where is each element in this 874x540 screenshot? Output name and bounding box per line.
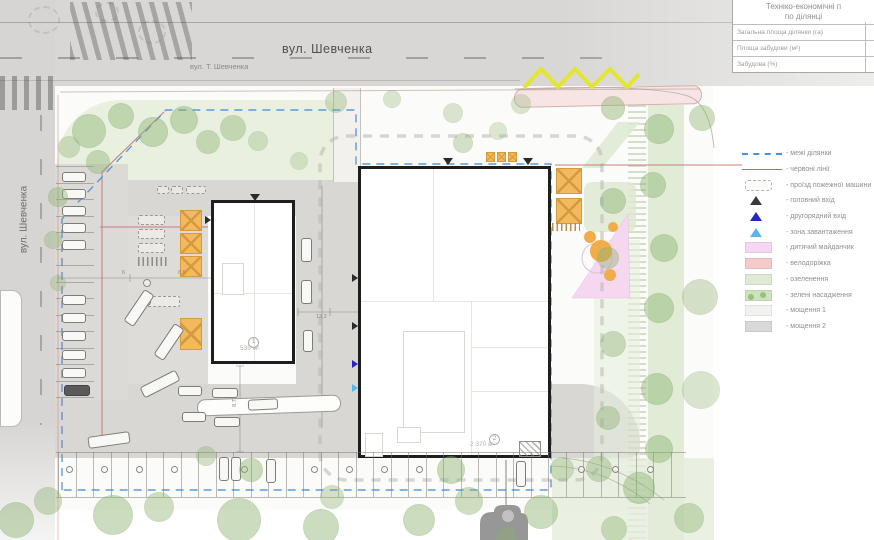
yellow-zigzag-marking: [524, 69, 639, 88]
tree: [623, 472, 655, 504]
secondary-entrance-marker: [352, 360, 358, 368]
tree: [217, 498, 261, 540]
stall-line: [56, 348, 94, 349]
vehicle: [62, 240, 86, 250]
vehicle: [219, 457, 229, 481]
stall-line: [146, 452, 147, 497]
vehicle: [62, 295, 86, 305]
stall-line: [426, 452, 427, 497]
vehicle: [248, 398, 279, 411]
tree: [597, 247, 619, 269]
marked-stall: [138, 229, 165, 239]
legend-item: - головний вхід: [742, 193, 874, 209]
tree: [689, 105, 715, 131]
tree: [383, 90, 401, 108]
vehicle: [62, 223, 86, 233]
dimension-label: 13.2: [316, 314, 327, 320]
vehicle: [62, 206, 86, 216]
loading-zone-marker: [352, 384, 358, 392]
bike-rack: [486, 152, 495, 162]
stall-line: [56, 381, 94, 382]
tree: [34, 487, 62, 515]
tree: [650, 234, 678, 262]
tree: [44, 231, 62, 249]
tree: [443, 103, 463, 123]
stall-line: [93, 452, 94, 497]
stall-symbol: [101, 466, 108, 473]
legend-label: - дитячий майданчик: [786, 244, 854, 251]
vehicle: [266, 459, 276, 483]
building-2: [358, 166, 551, 458]
tree: [248, 131, 268, 151]
stall-line: [583, 452, 584, 497]
vehicle: [62, 368, 86, 378]
legend-label: - мощення 1: [786, 307, 826, 314]
tree: [524, 495, 558, 529]
tree: [682, 371, 720, 409]
building-2-area: 2 370 м²: [470, 441, 495, 448]
tree: [511, 94, 531, 114]
legend-label: - другорядний вхід: [786, 213, 846, 220]
main-entrance-marker: [523, 158, 533, 165]
stall-line: [111, 452, 112, 497]
tree: [644, 293, 674, 323]
legend-item: - межі ділянки: [742, 146, 874, 162]
tree: [645, 435, 673, 463]
stall-line: [671, 452, 672, 497]
vehicle: [301, 280, 312, 304]
stall-line: [58, 452, 59, 497]
tree: [550, 457, 574, 481]
tree: [239, 458, 263, 482]
legend-item: - другорядний вхід: [742, 209, 874, 225]
vehicle: [62, 313, 86, 323]
tree: [600, 331, 626, 357]
legend-swatch-line-dashed-icon: [742, 153, 786, 155]
stall-symbol: [171, 466, 178, 473]
tree: [196, 130, 220, 154]
legend-item: - мощення 2: [742, 319, 874, 335]
bike-rack-comb: [552, 223, 580, 231]
legend-label: - червоні лінії: [786, 166, 830, 173]
legend: - межі ділянки- червоні лінії- проїзд по…: [742, 146, 874, 334]
vehicle: [301, 238, 312, 262]
street-label-top: вул. Шевченка: [282, 42, 373, 56]
tree: [325, 91, 347, 113]
legend-swatch-rect-trees-icon: [742, 290, 786, 301]
vehicle: [62, 172, 86, 182]
stall-line: [303, 452, 304, 497]
vehicle: [516, 461, 526, 487]
canopy: [180, 210, 202, 231]
tree: [682, 279, 718, 315]
tree: [437, 456, 465, 484]
vehicle: [303, 330, 313, 352]
tree: [640, 172, 666, 198]
tree: [303, 509, 339, 540]
table-row: Забудова (%): [733, 56, 874, 72]
legend-label: - мощення 2: [786, 323, 826, 330]
stall-symbol: [346, 466, 353, 473]
marked-stall: [186, 186, 206, 194]
stall-line: [618, 452, 619, 497]
canopy: [180, 318, 202, 350]
stall-line: [56, 265, 94, 266]
tree: [586, 456, 612, 482]
stall-symbol: [381, 466, 388, 473]
tree: [144, 492, 174, 522]
stall-line: [56, 183, 94, 184]
marked-stall: [157, 186, 169, 194]
tree: [290, 152, 308, 170]
vehicle: [214, 417, 240, 427]
tree: [170, 106, 198, 134]
canopy: [180, 233, 202, 254]
vehicle: [182, 412, 206, 422]
stall-line: [391, 452, 392, 497]
bike-rack: [508, 152, 517, 162]
vehicle: [212, 388, 238, 398]
stall-line: [128, 452, 129, 497]
table-row: Загальна площа ділянки (га): [733, 24, 874, 40]
tree: [138, 117, 168, 147]
tree: [48, 187, 68, 207]
tree: [455, 487, 483, 515]
tree: [50, 275, 66, 291]
tree: [320, 485, 344, 509]
stall-line: [216, 452, 217, 497]
table-row: Площа забудови (м²): [733, 40, 874, 56]
tree: [86, 150, 110, 174]
street-label-left: вул. Шевченка: [19, 160, 30, 280]
legend-swatch-triangle-icon: [742, 196, 786, 205]
legend-label: - зелені насадження: [786, 292, 852, 299]
legend-swatch-rect-icon: [742, 321, 786, 332]
bike-rack: [497, 152, 506, 162]
legend-swatch-rect-icon: [742, 274, 786, 285]
marked-stall: [138, 215, 165, 225]
legend-item: - велодоріжка: [742, 256, 874, 272]
legend-item: - зелені насадження: [742, 287, 874, 303]
secondary-entrance-marker: [352, 322, 358, 330]
legend-swatch-rect-dashed-icon: [742, 180, 786, 191]
street-sublabel-top: вул. Т. Шевченка: [190, 62, 248, 71]
legend-swatch-rect-icon: [742, 305, 786, 316]
stall-line: [408, 452, 409, 497]
stall-line: [56, 364, 94, 365]
dimension-label: 8.7: [232, 399, 238, 407]
tree: [601, 96, 625, 120]
tree: [644, 114, 674, 144]
tree: [453, 133, 473, 153]
tree: [489, 122, 507, 140]
tree: [601, 516, 627, 540]
tree: [674, 503, 704, 533]
legend-item: - червоні лінії: [742, 162, 874, 178]
stall-symbol: [66, 466, 73, 473]
legend-swatch-rect-icon: [742, 258, 786, 269]
secondary-entrance-marker: [352, 274, 358, 282]
main-entrance-marker: [443, 158, 453, 165]
legend-label: - зона завантаження: [786, 229, 853, 236]
stall-symbol: [647, 466, 654, 473]
stall-line: [181, 452, 182, 497]
site-plan-canvas: вул. Шевченка вул. Т. Шевченка вул. Шевч…: [0, 0, 874, 540]
stall-symbol: [578, 466, 585, 473]
stall-symbol: [612, 466, 619, 473]
secondary-entrance-marker: [205, 216, 211, 224]
tree: [93, 495, 133, 535]
main-entrance-marker: [250, 194, 260, 201]
legend-label: - озеленення: [786, 276, 828, 283]
bike-rack-comb: [138, 257, 168, 266]
tree: [108, 103, 134, 129]
dimension-label: 8.5: [178, 270, 186, 276]
legend-label: - велодоріжка: [786, 260, 831, 267]
stall-line: [76, 452, 77, 497]
stall-line: [496, 452, 497, 497]
tree: [58, 136, 80, 158]
stall-line: [513, 452, 514, 497]
marked-stall: [138, 243, 165, 253]
tree: [196, 446, 216, 466]
legend-swatch-rect-icon: [742, 242, 786, 253]
vehicle: [62, 350, 86, 360]
tree: [600, 188, 626, 214]
table-title-line1: Техніко-економічні п: [735, 2, 872, 12]
vehicle-dark: [64, 385, 90, 396]
stall-symbol: [136, 466, 143, 473]
legend-swatch-triangle-icon: [742, 228, 786, 237]
building-1-area: 535 м²: [240, 345, 259, 352]
dimension-label: 6: [122, 270, 125, 276]
tree: [220, 115, 246, 141]
stall-line: [286, 452, 287, 497]
stall-line: [531, 452, 532, 497]
stall-line: [163, 452, 164, 497]
marked-stall: [171, 186, 183, 194]
table-column-divider: [865, 22, 866, 72]
indicators-table: Техніко-економічні п по ділянці Загальна…: [732, 0, 874, 73]
vehicle: [178, 386, 202, 396]
legend-label: - проїзд пожежної машини: [786, 182, 871, 189]
legend-label: - головний вхід: [786, 197, 835, 204]
legend-swatch-triangle-icon: [742, 212, 786, 221]
stall-line: [373, 452, 374, 497]
stall-symbol: [416, 466, 423, 473]
legend-swatch-line-solid-icon: [742, 169, 786, 170]
stall-line: [56, 397, 94, 398]
legend-item: - зона завантаження: [742, 224, 874, 240]
tree: [596, 406, 620, 430]
stall-line: [548, 452, 549, 497]
stall-line: [356, 452, 357, 497]
legend-label: - межі ділянки: [786, 150, 831, 157]
hydrant-symbol: [143, 279, 151, 287]
table-title-line2: по ділянці: [735, 12, 872, 22]
legend-item: - мощення 1: [742, 303, 874, 319]
tree: [641, 373, 673, 405]
stall-symbol: [311, 466, 318, 473]
canopy: [556, 168, 582, 194]
canopy: [556, 198, 582, 224]
table-title: Техніко-економічні п по ділянці: [733, 0, 874, 24]
legend-item: - дитячий майданчик: [742, 240, 874, 256]
legend-item: - проїзд пожежної машини: [742, 177, 874, 193]
vehicle: [62, 331, 86, 341]
tree: [403, 504, 435, 536]
stall-line: [56, 452, 686, 453]
legend-item: - озеленення: [742, 272, 874, 288]
